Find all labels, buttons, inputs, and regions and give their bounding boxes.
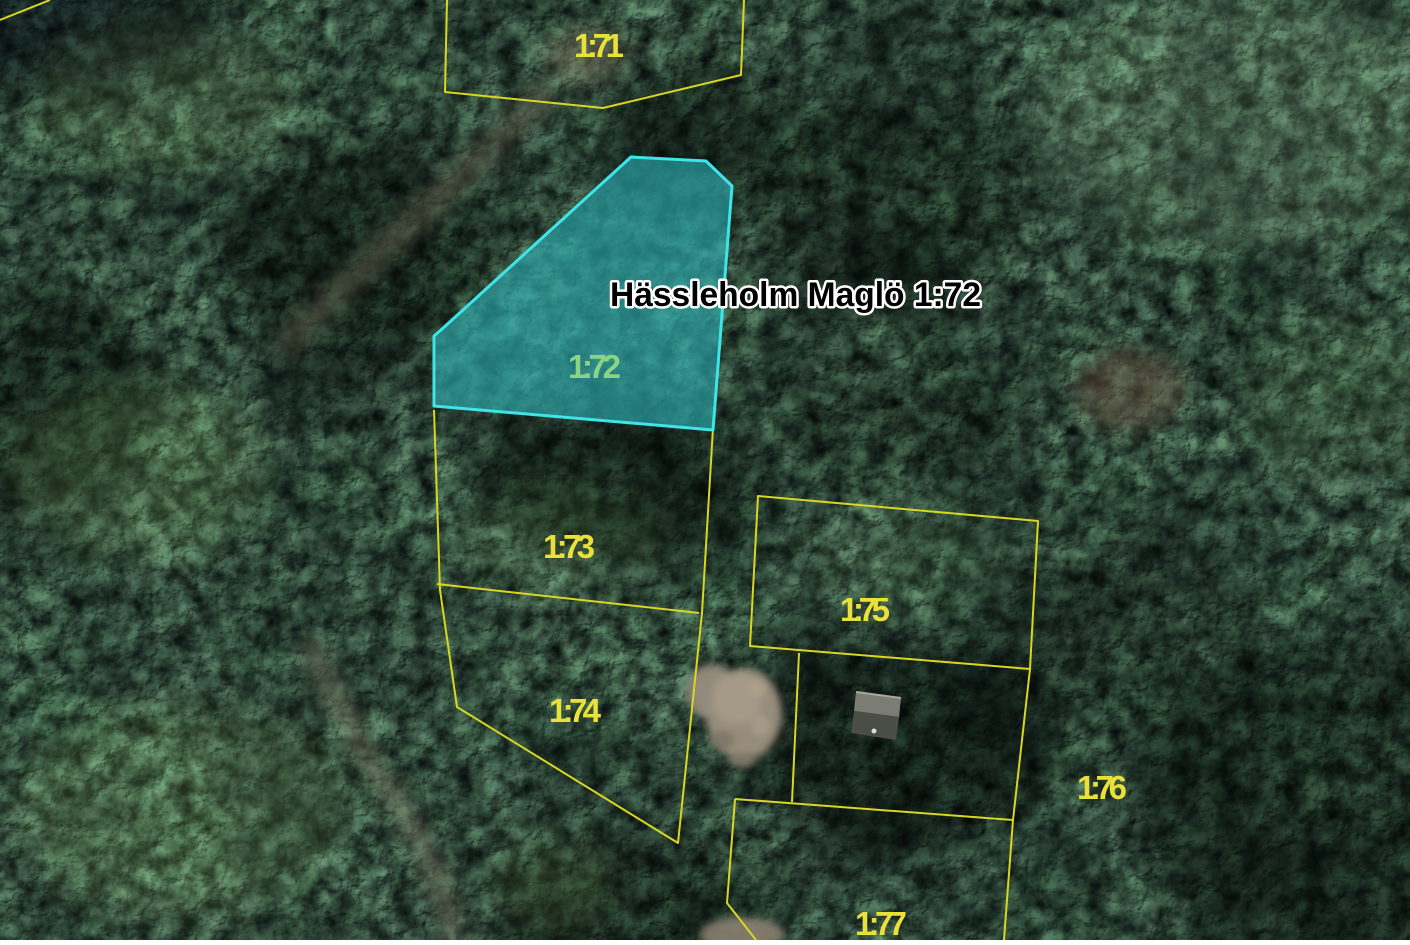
svg-text:1:71: 1:71 [574, 27, 624, 64]
svg-text:Hässleholm Maglö 1:72: Hässleholm Maglö 1:72 [610, 276, 981, 314]
svg-text:1:73: 1:73 [543, 528, 595, 565]
svg-text:1:76: 1:76 [1077, 769, 1127, 806]
svg-text:1:75: 1:75 [840, 591, 890, 628]
svg-text:1:77: 1:77 [855, 905, 907, 940]
svg-text:1:74: 1:74 [549, 692, 602, 729]
svg-text:1:72: 1:72 [568, 348, 621, 385]
